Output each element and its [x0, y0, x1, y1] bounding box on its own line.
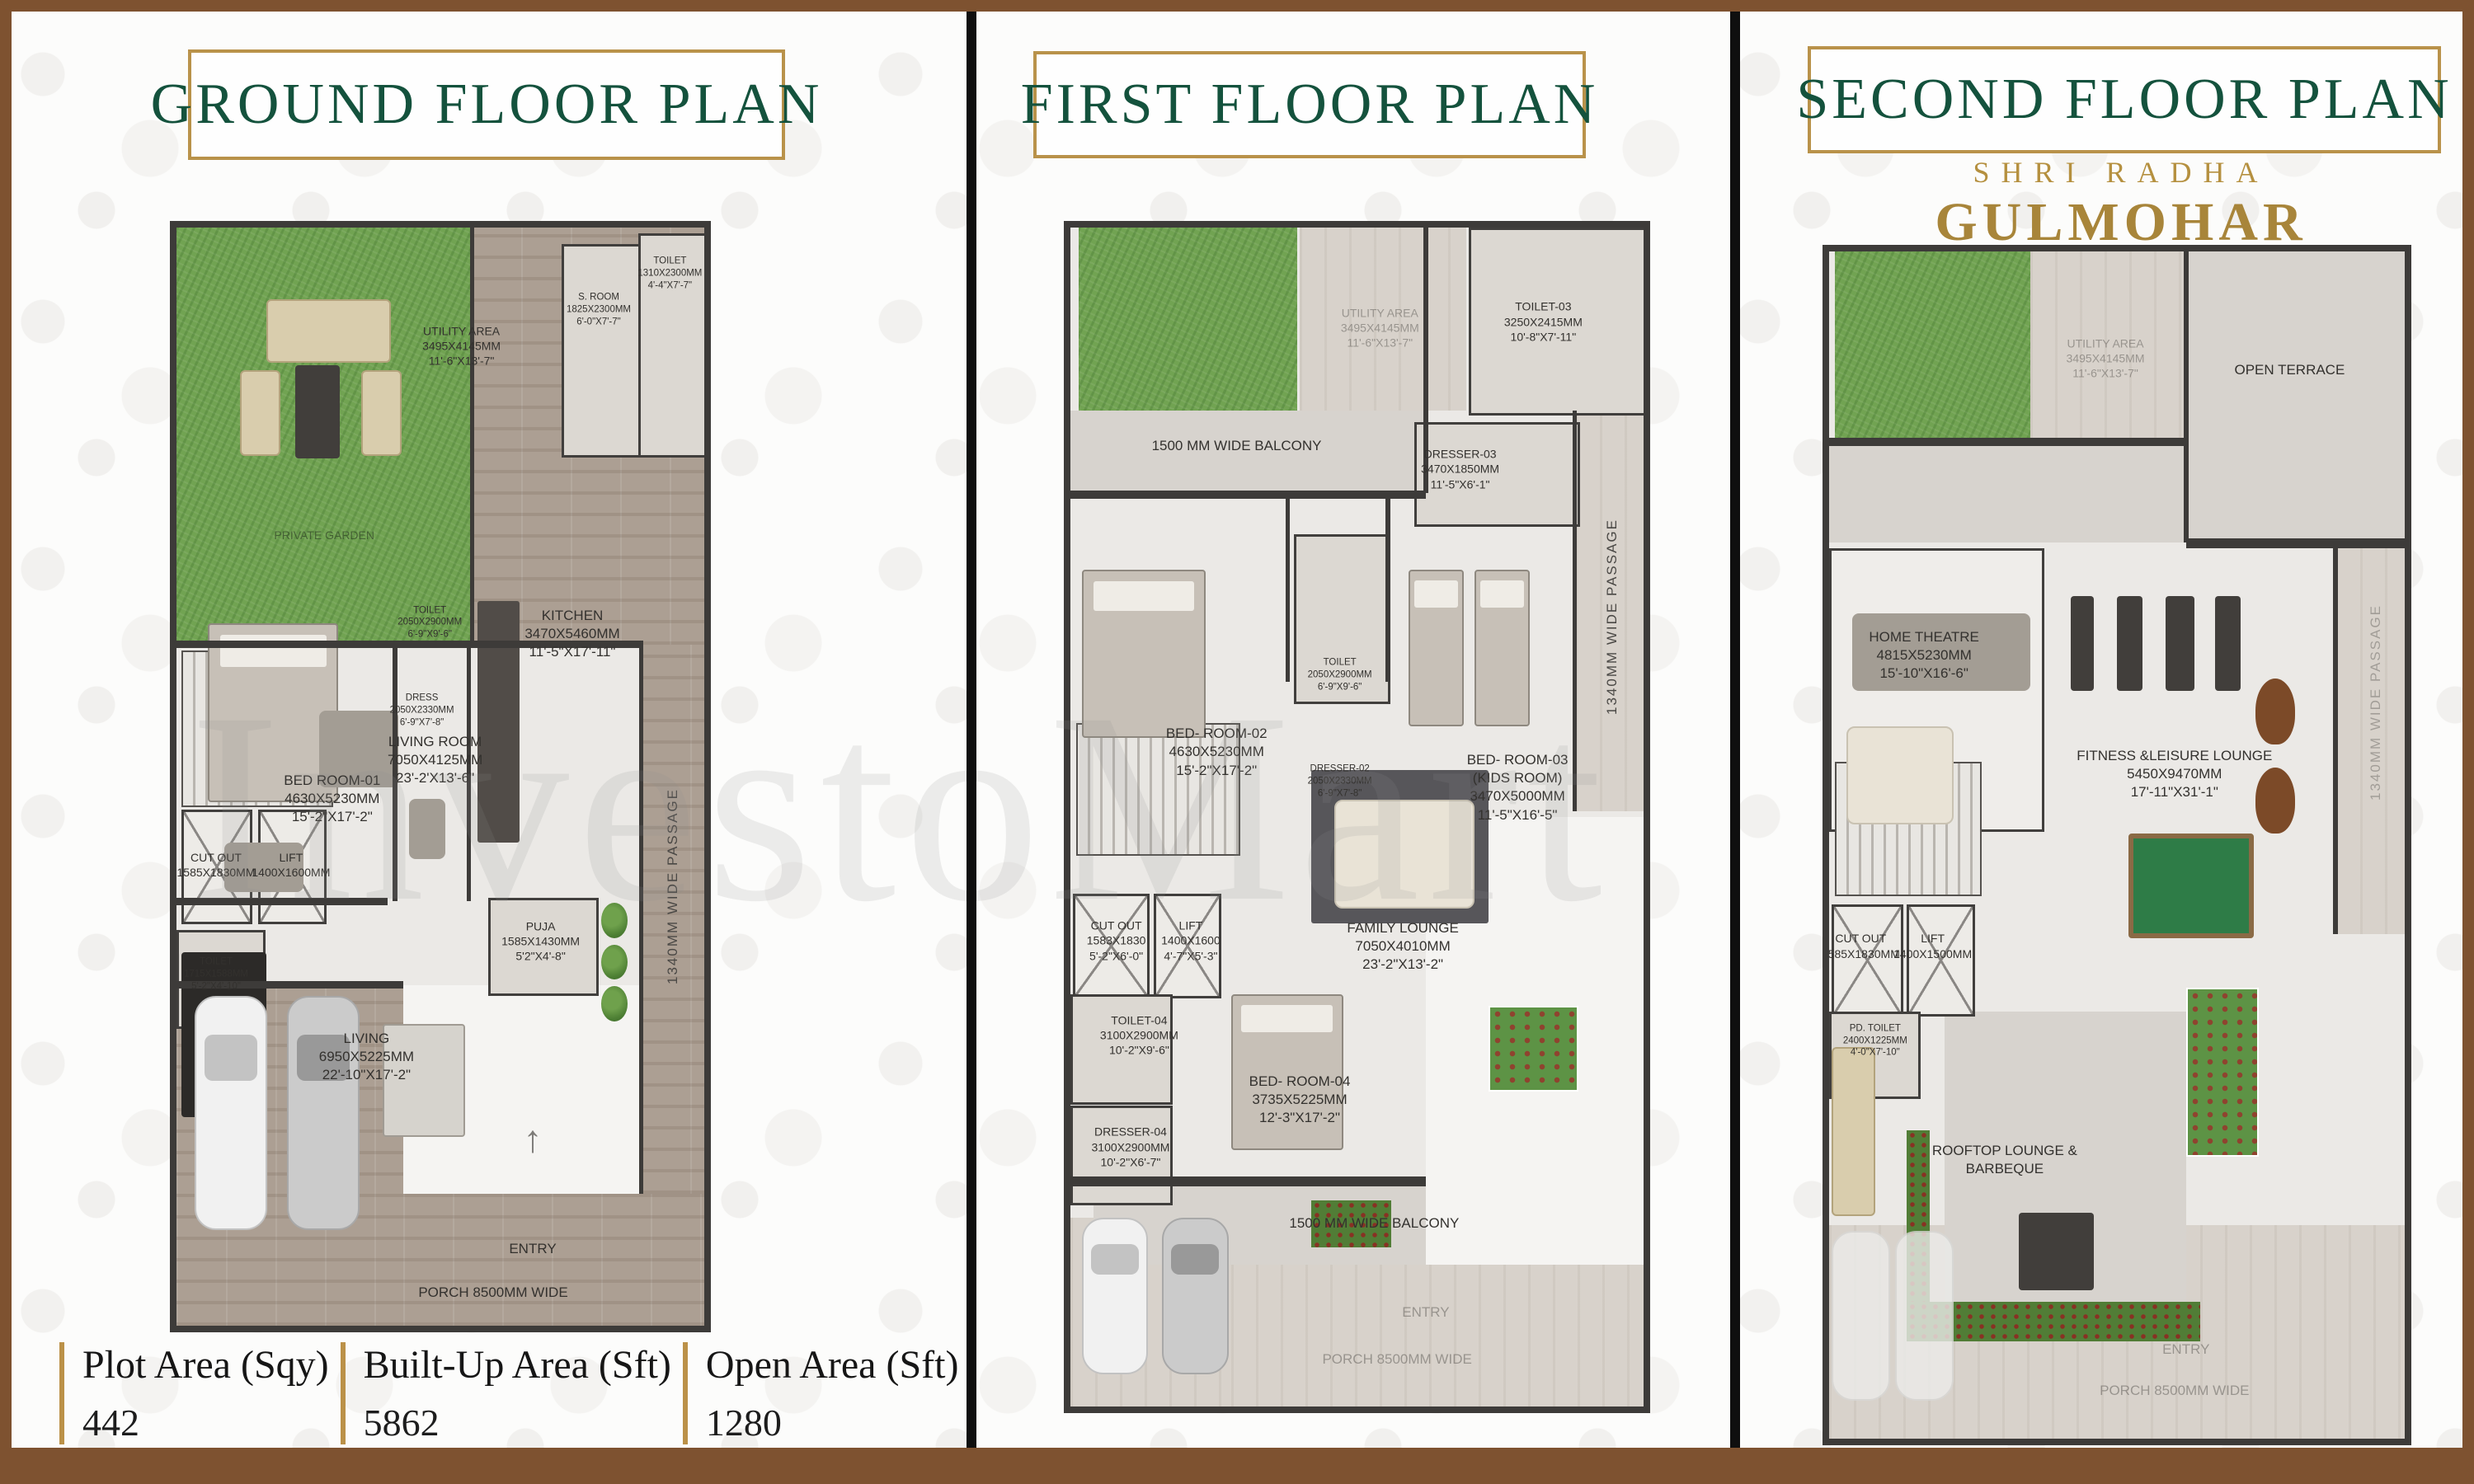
room-label-1500-mm-wide-balcony: 1500 MM WIDE BALCONY — [1289, 1214, 1459, 1233]
stat-plot-area-value: 442 — [82, 1401, 329, 1444]
room-label-cut-out: CUT OUT1583X18305'-2"X6'-0" — [1087, 918, 1146, 964]
zone-wall — [639, 645, 643, 1194]
title-ground-floor-plan: GROUND FLOOR PLAN — [188, 49, 785, 160]
room-label-toilet: TOILET1310X2300MM4'-4"X7'-7" — [637, 256, 702, 293]
zone-bed — [1475, 570, 1530, 726]
room-label-kitchen: KITCHEN3470X5460MM11'-5"X17'-11" — [524, 607, 619, 661]
zone-sofat — [266, 299, 391, 363]
zone-carb — [1162, 1218, 1228, 1374]
zone-plant — [601, 945, 628, 980]
zone-sofa — [409, 799, 446, 859]
room-label-puja: PUJA1585X1430MM5'2"X4'-8" — [501, 919, 580, 965]
zone-wall — [1286, 493, 1291, 682]
room-label-porch-8500mm-wide: PORCH 8500MM WIDE — [418, 1284, 567, 1302]
room-label-living-room: LIVING ROOM7050X4125MM23'-2'X13'-6" — [388, 733, 482, 787]
zone-wood — [403, 1194, 704, 1326]
zone-sofat — [1832, 1047, 1875, 1217]
room-label-dresser-03: DRESSER-033470X1850MM11'-5"X6'-1" — [1421, 447, 1499, 492]
floor-plan-brochure: InvestoMart GROUND FLOOR PLAN FIRST FLOO… — [0, 0, 2474, 1484]
stat-open-area-value: 1280 — [706, 1401, 959, 1444]
brand-line-shri-radha: SHRI RADHA — [1808, 155, 2434, 190]
zone-equip — [295, 365, 340, 458]
zone-carf — [1832, 1231, 1889, 1401]
room-label-bed-room-01: BED ROOM-014630X5230MM15'-2"X17'-2" — [284, 771, 380, 825]
room-label-private-garden: PRIVATE GARDEN — [274, 528, 374, 542]
zone-roomd — [562, 244, 641, 458]
room-label-home-theatre: HOME THEATRE4815X5230MM15'-10"X16'-6" — [1869, 627, 1979, 682]
zone-carf — [1895, 1231, 1953, 1401]
room-label-dress: DRESS2050X2330MM6'-9"X7'-8" — [390, 693, 454, 730]
zone-wall — [2184, 251, 2189, 542]
stat-open-area: Open Area (Sft) 1280 — [683, 1342, 959, 1444]
room-label-lift: LIFT1400X16004'-7"X5'-3" — [1161, 918, 1221, 964]
room-label-entry: ENTRY — [2162, 1341, 2209, 1359]
zone-wall — [2186, 538, 2405, 548]
title-text-ground: GROUND FLOOR PLAN — [151, 72, 823, 138]
room-label-toilet: TOILET1715X1588MM5'-2"X4'-10" — [184, 956, 248, 993]
zone-terr — [2186, 251, 2405, 542]
zone-grass — [1079, 228, 1296, 411]
zone-bed — [1409, 570, 1464, 726]
zone-terr — [1829, 441, 2186, 542]
zone-wall — [1070, 491, 1426, 499]
zone-plant — [601, 903, 628, 938]
room-label-porch-8500mm-wide: PORCH 8500MM WIDE — [2100, 1382, 2249, 1400]
zone-chairb — [2255, 679, 2296, 744]
zone-woodf — [1231, 1265, 1644, 1407]
zone-pool — [2128, 834, 2254, 938]
room-label-family-lounge: FAMILY LOUNGE7050X4010MM23'-2"X13'-2" — [1347, 919, 1458, 974]
room-label-rooftop-lounge: ROOFTOP LOUNGE &BARBEQUE — [1932, 1142, 2077, 1178]
zone-wall — [1385, 493, 1390, 682]
stat-plot-area-label: Plot Area (Sqy) — [82, 1342, 329, 1388]
stat-built-up-area-label: Built-Up Area (Sft) — [364, 1342, 671, 1388]
panel-divider-left — [967, 12, 976, 1448]
zone-wall — [176, 641, 472, 648]
title-first-floor-plan: FIRST FLOOR PLAN — [1033, 51, 1586, 158]
zone-wall — [1070, 1176, 1426, 1186]
room-label-s-room: S. ROOM1825X2300MM6'-0"X7'-7" — [567, 291, 631, 328]
room-label-toilet: TOILET2050X2900MM6'-9"X9'-6" — [397, 604, 462, 641]
room-label-lift: LIFT1400X1600MM — [252, 849, 330, 879]
zone-sofat — [240, 370, 280, 456]
zone-car — [195, 996, 266, 1230]
zone-car — [1082, 1218, 1148, 1374]
zone-counter — [477, 601, 520, 843]
zone-equip — [2071, 596, 2094, 691]
zone-grass — [1835, 251, 2030, 441]
room-label-toilet-04: TOILET-043100X2900MM10'-2"X9'-6" — [1100, 1012, 1178, 1058]
room-label-cut-out: CUT OUT1585X1830MM — [1823, 931, 1900, 960]
zone-bed — [1082, 570, 1206, 738]
zone-sofat — [361, 370, 402, 456]
room-label-1340mm-wide-passage: 1340MM WIDE PASSAGE — [664, 788, 682, 984]
room-label-1500-mm-wide-balcony: 1500 MM WIDE BALCONY — [1152, 437, 1322, 455]
zone-wall — [1829, 438, 2186, 446]
room-label-fitness-leisure-lounge: FITNESS &LEISURE LOUNGE5450X9470MM17'-11… — [2077, 746, 2272, 801]
stat-plot-area: Plot Area (Sqy) 442 — [59, 1342, 329, 1444]
room-label-1340mm-wide-passage: 1340MM WIDE PASSAGE — [1603, 519, 1621, 715]
zone-sofal — [1334, 800, 1475, 909]
room-label-pd-toilet: PD. TOILET2400X1225MM4'-0"X7'-10" — [1843, 1022, 1907, 1059]
first-floor-plan-drawing: 1500 MM WIDE BALCONYUTILITY AREA3495X414… — [1064, 221, 1650, 1413]
title-second-floor-plan: SECOND FLOOR PLAN — [1808, 46, 2441, 153]
room-label-porch-8500mm-wide: PORCH 8500MM WIDE — [1322, 1350, 1471, 1369]
room-label-entry: ENTRY — [1402, 1303, 1449, 1322]
zone-wall — [176, 898, 388, 905]
room-label-dresser-02: DRESSER-022050X2330MM6'-9"X7'-8" — [1308, 763, 1372, 801]
room-label-utility-area: UTILITY AREA3495X4145MM11'-6"X13'-7" — [1341, 305, 1419, 350]
stat-built-up-area: Built-Up Area (Sft) 5862 — [341, 1342, 671, 1444]
room-label-bed-room-02: BED- ROOM-024630X5230MM15'-2"X17'-2" — [1166, 725, 1268, 779]
zone-equip — [2019, 1213, 2094, 1290]
room-label-entry: ENTRY — [509, 1240, 556, 1258]
stat-built-up-area-value: 5862 — [364, 1401, 671, 1444]
entry-arrow-icon: ↑ — [524, 1115, 543, 1164]
room-label-toilet-03: TOILET-033250X2415MM10'-8"X7'-11" — [1504, 299, 1583, 345]
room-label-living: LIVING6950X5225MM22'-10"X17'-2" — [319, 1030, 414, 1084]
room-label-1340mm-wide-passage: 1340MM WIDE PASSAGE — [2367, 604, 2385, 801]
room-label-utility-area: UTILITY AREA3495X4145MM11'-6"X13'-7" — [422, 324, 501, 369]
zone-equip — [2166, 596, 2194, 691]
room-label-utility-area: UTILITY AREA3495X4145MM11'-6"X13'-7" — [2067, 336, 2145, 381]
second-floor-plan-drawing: UTILITY AREA3495X4145MM11'-6"X13'-7"OPEN… — [1823, 245, 2411, 1445]
zone-plant — [601, 986, 628, 1021]
zone-wall — [1573, 411, 1578, 811]
brand-line-gulmohar: GULMOHAR — [1808, 191, 2434, 254]
area-stats: Plot Area (Sqy) 442 Built-Up Area (Sft) … — [59, 1342, 967, 1444]
zone-gard — [1489, 1006, 1578, 1092]
zone-gard — [2186, 988, 2259, 1158]
zone-equip — [2117, 596, 2142, 691]
room-label-toilet: TOILET2050X2900MM6'-9"X9'-6" — [1308, 657, 1372, 694]
zone-equip — [2215, 596, 2241, 691]
zone-sofal — [1846, 726, 1954, 824]
room-label-bed-room-04: BED- ROOM-043735X5225MM12'-3"X17'-2" — [1249, 1073, 1351, 1127]
ground-floor-plan-drawing: PRIVATE GARDENUTILITY AREA3495X4145MM11'… — [170, 221, 711, 1332]
room-label-lift: LIFT1400X1500MM — [1893, 931, 1972, 960]
room-label-dresser-04: DRESSER-043100X2900MM10'-2"X6'-7" — [1091, 1125, 1169, 1170]
title-text-first: FIRST FLOOR PLAN — [1021, 72, 1599, 138]
brand-logo: SHRI RADHA GULMOHAR — [1808, 155, 2434, 254]
room-label-open-terrace: OPEN TERRACE — [2234, 361, 2345, 379]
stat-open-area-label: Open Area (Sft) — [706, 1342, 959, 1388]
zone-wall — [470, 228, 474, 645]
panel-divider-right — [1730, 12, 1740, 1448]
title-text-second: SECOND FLOOR PLAN — [1796, 67, 2452, 133]
room-label-cut-out: CUT OUT1585X1830MM — [177, 849, 256, 879]
room-label-bed-room-03: BED- ROOM-03(KIDS ROOM)3470X5000MM11'-5"… — [1467, 751, 1569, 824]
zone-wall — [2333, 542, 2338, 934]
